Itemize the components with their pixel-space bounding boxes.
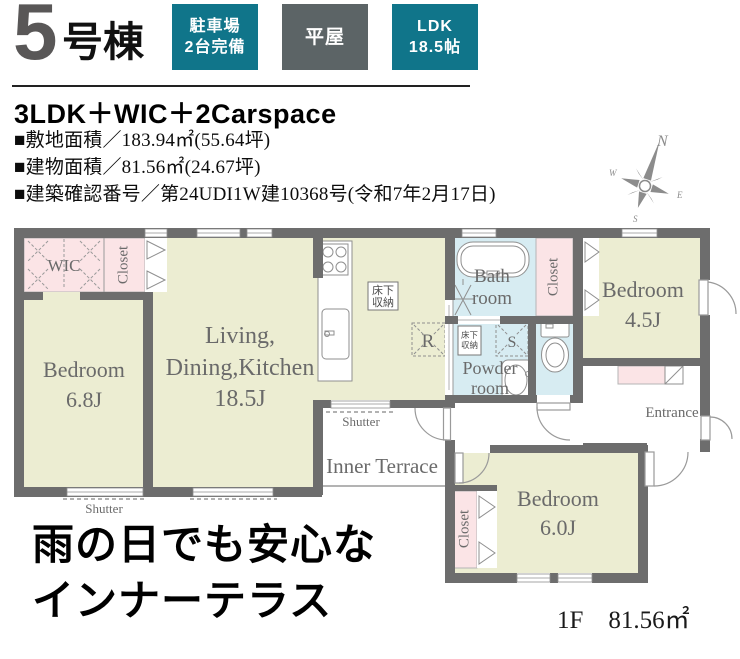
badge-single-story-label: 平屋 [305, 27, 345, 48]
label-powder-2: room [471, 378, 509, 398]
label-bedroom1: Bedroom [43, 357, 125, 382]
label-shutter-bottom: Shutter [85, 501, 123, 516]
floor-storage-ldk: 床下 収納 [368, 282, 398, 310]
label-ldk-2: Dining,Kitchen [166, 355, 315, 381]
label-powder-1: Powder [463, 358, 518, 378]
entrance-storage [665, 366, 683, 384]
label-closet-nw: Closet [115, 245, 131, 284]
floor-storage-powder: 床下 収納 [458, 326, 481, 355]
label-bedroom2-size: 4.5J [625, 307, 662, 332]
label-wic: WIC [47, 256, 80, 275]
label-ldk-1: Living, [205, 323, 275, 349]
floor-area-label: 1F 81.56㎡ [557, 600, 690, 636]
floorplan-page: 5 号棟 駐車場 2台完備 平屋 LDK 18.5帖 3LDK＋WIC＋2Car… [0, 0, 740, 659]
badge-ldk-line2: 18.5帖 [409, 37, 461, 58]
label-inner-terrace: Inner Terrace [326, 454, 438, 478]
label-entrance: Entrance [645, 405, 699, 421]
label-bedroom3: Bedroom [517, 486, 599, 511]
svg-text:床下: 床下 [372, 283, 394, 297]
compass-s: S [633, 214, 638, 224]
badge-parking-line1: 駐車場 [189, 16, 240, 37]
layout-summary: 3LDK＋WIC＋2Carspace [14, 92, 337, 131]
property-details: ■敷地面積／183.94㎡(55.64坪) ■建物面積／81.56㎡(24.67… [14, 127, 496, 208]
compass-e: E [676, 190, 683, 200]
badge-parking: 駐車場 2台完備 [172, 4, 258, 70]
sliding-door-bath [458, 316, 500, 324]
svg-text:収納: 収納 [372, 296, 394, 309]
label-bath-1: Bath [474, 266, 510, 287]
toilet-icon [541, 321, 569, 372]
svg-text:床下: 床下 [461, 330, 479, 340]
kitchen-counter [318, 241, 352, 381]
refrigerator-mark: R [422, 331, 435, 352]
label-bedroom2: Bedroom [602, 277, 684, 302]
washer-mark: S [508, 334, 517, 351]
label-closet-ne: Closet [545, 257, 561, 296]
compass-n: N [656, 133, 669, 150]
compass-w: W [609, 168, 618, 178]
label-ldk-3: 18.5J [214, 386, 265, 412]
badge-ldk-size: LDK 18.5帖 [392, 4, 478, 70]
label-bath-2: room [472, 288, 512, 309]
stove-icon [321, 244, 348, 275]
divider-line [12, 85, 470, 87]
label-closet-sw: Closet [456, 509, 472, 548]
unit-number: 5 [13, 0, 58, 72]
compass-icon: N W E S [605, 132, 689, 233]
badge-parking-line2: 2台完備 [185, 37, 246, 58]
unit-suffix: 号棟 [62, 22, 144, 63]
catch-copy-line1: 雨の日でも安心な [32, 518, 376, 574]
badge-single-story: 平屋 [282, 4, 368, 70]
catch-copy-line2: インナーテラス [32, 574, 376, 630]
building-area: ■建物面積／81.56㎡(24.67坪) [14, 154, 496, 181]
kitchen-sink-icon [322, 309, 349, 359]
label-bedroom3-size: 6.0J [540, 515, 577, 540]
catch-copy: 雨の日でも安心な インナーテラス [32, 518, 376, 630]
site-area: ■敷地面積／183.94㎡(55.64坪) [14, 127, 496, 154]
sliding-door-ldk [445, 300, 453, 395]
label-bedroom1-size: 6.8J [66, 387, 103, 412]
confirmation-number: ■建築確認番号／第24UDI1W建10368号(令和7年2月17日) [14, 181, 496, 208]
badge-ldk-line1: LDK [417, 16, 453, 37]
svg-text:収納: 収納 [461, 340, 478, 350]
label-shutter-terrace: Shutter [342, 414, 380, 429]
